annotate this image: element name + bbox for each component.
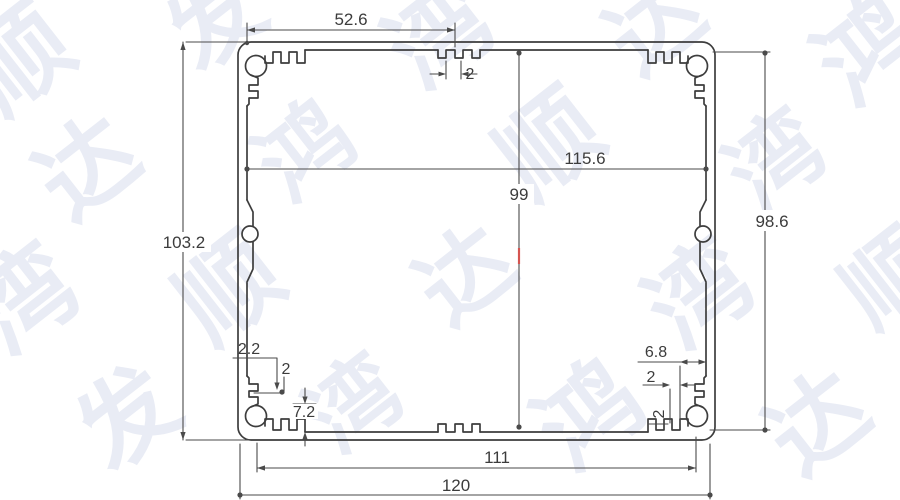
- dim-top-tooth: 2: [466, 66, 475, 83]
- dim-bl-tooth: 2: [282, 361, 291, 378]
- profile-drawing: 52.6 2 115.6 99 103.2 98.6 2.2 2 7.2 6.8…: [0, 0, 900, 500]
- profile-outer-contour: [238, 42, 715, 440]
- dimension-arrows: [180, 27, 706, 470]
- dim-br-tooth-vertical: 2: [651, 409, 668, 418]
- side-screw-channel-right: [695, 200, 711, 282]
- dim-overall-width: 120: [442, 476, 470, 495]
- cad-drawing-canvas: 顺 发 湾 达 鸿 达 鸿 顺 湾 湾 顺 达 湾 顺 发 湾 鸿 达: [0, 0, 900, 500]
- dimension-dots: [237, 41, 767, 498]
- dim-overall-height: 103.2: [163, 233, 206, 252]
- top-center-teeth: [438, 50, 480, 58]
- dim-top-width: 52.6: [334, 10, 367, 29]
- dim-bl-boss-height: 7.2: [293, 404, 315, 421]
- profile-inner-walls: [247, 50, 706, 432]
- dim-inner-height: 99: [510, 185, 529, 204]
- corner-screw-boss-top-left: [246, 50, 306, 106]
- side-screw-channel-left: [242, 200, 258, 282]
- dim-br-boss-width: 6.8: [645, 344, 667, 361]
- dim-br-tooth: 2: [647, 369, 656, 386]
- dimension-lines: [183, 23, 770, 499]
- bottom-center-teeth: [438, 424, 480, 432]
- dim-inner-width: 115.6: [564, 149, 605, 168]
- dim-right-inner-height: 98.6: [755, 212, 788, 231]
- dim-bl-tooth-width: 2.2: [238, 341, 260, 358]
- profile-outline: [238, 42, 715, 440]
- dim-bottom-screw-span: 111: [484, 448, 510, 467]
- corner-screw-boss-top-right: [648, 50, 708, 106]
